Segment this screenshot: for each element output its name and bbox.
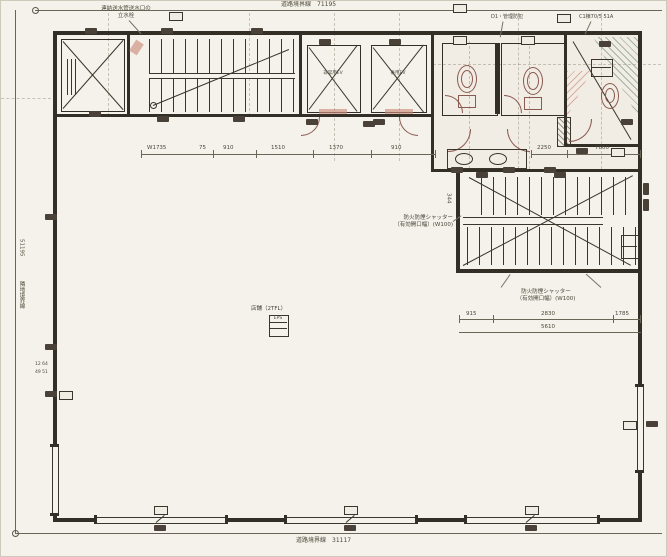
elevator-label: 乗用EV (373, 71, 423, 78)
dim-label: 49 51 (35, 370, 48, 377)
dim-label: 910 (223, 145, 234, 152)
opening-tag (451, 167, 463, 173)
opening-tag (525, 506, 539, 515)
opening-tag (646, 421, 658, 427)
louver-line (75, 59, 76, 95)
dim-label: 7800 (595, 145, 609, 152)
window-jamb (415, 515, 418, 524)
window-jamb (635, 384, 644, 387)
elevator-door (319, 109, 347, 114)
leader-line (501, 274, 511, 288)
boundary-line-bottom (15, 533, 662, 534)
window-jamb (635, 470, 644, 473)
opening-tag (306, 119, 318, 125)
top-right-note: C1棟70/5 51A (579, 14, 613, 21)
dim-label: 12 64 (35, 362, 48, 369)
stair-dim-vertical: 344 (445, 193, 452, 204)
stair-treads (149, 78, 295, 112)
opening-tag (599, 41, 611, 47)
dim-tick (640, 150, 641, 158)
boundary-left-number: 51195 (18, 239, 25, 257)
dim-tick (531, 150, 532, 158)
interior-wall (127, 31, 130, 117)
dim-line (459, 332, 641, 333)
opening-tag (557, 14, 571, 23)
stair-wall (456, 172, 460, 273)
door-swing-arc (399, 117, 418, 136)
boundary-label-bottom: 道路境界線 31117 (296, 538, 351, 545)
stair-landing-rail (463, 217, 603, 225)
dim-tick (313, 150, 314, 158)
opening-tag (525, 525, 537, 531)
hydrant-note-line2: 立水栓 (71, 13, 181, 20)
opening-tag (576, 148, 588, 154)
floor-plan-sheet: 道路境界線 71195 道路境界線 31117 51195 隣地境界線 (0, 0, 667, 557)
window (637, 386, 644, 471)
dim-tick (567, 150, 568, 158)
dim-tick (371, 150, 372, 158)
boundary-corner-marker (32, 7, 39, 14)
boundary-left-label: 隣地境界線 (18, 281, 25, 309)
window-jamb (94, 515, 97, 524)
boundary-label-top: 道路境界線 71195 (281, 2, 336, 9)
dim-tick (256, 150, 257, 158)
elevator-door (385, 109, 413, 114)
toilet-bowl (461, 70, 473, 88)
opening-tag (251, 28, 263, 34)
shutter-note2-line1: 防火防煙シャッター (471, 289, 621, 296)
window-jamb (50, 513, 59, 516)
leader-line (586, 274, 602, 288)
louver-line (71, 59, 72, 95)
opening-tag (643, 183, 649, 195)
interior-wall (431, 31, 434, 172)
equipment-box-divider (591, 67, 611, 68)
dim-label: 1510 (271, 145, 285, 152)
opening-tag (344, 525, 356, 531)
shutter-note1-line2: （有効開口幅）(W100) (331, 222, 453, 229)
hydrant-note-line1: 連結送水管送水口の (71, 6, 181, 13)
window (52, 446, 59, 514)
opening-tag (621, 119, 633, 125)
boundary-line-left (15, 10, 16, 534)
scan-mark (129, 40, 144, 56)
opening-tag (154, 525, 166, 531)
opening-tag (59, 391, 73, 400)
dim-label: 910 (391, 145, 402, 152)
dim-label: 915 (466, 311, 477, 318)
eps-label: EPS (269, 316, 287, 323)
urinal-bowl (605, 88, 615, 103)
window-jamb (225, 515, 228, 524)
opening-tag (554, 172, 566, 178)
dim-tick (640, 315, 641, 323)
shutter-note1-line1: 防火防煙シャッター (331, 215, 453, 222)
opening-tag (169, 12, 183, 21)
dim-tick (141, 150, 142, 158)
eps-box-divider (269, 328, 287, 329)
dim-tick (613, 315, 614, 323)
boundary-corner-marker (12, 530, 19, 537)
opening-tag (45, 214, 57, 220)
shutter-note2-line2: （有効開口幅）(W100) (471, 296, 621, 303)
dim-label: 1785 (615, 311, 629, 318)
window-jamb (464, 515, 467, 524)
stair-arrow-start (150, 102, 157, 109)
dim-label: W1735 (147, 145, 166, 152)
stair-treads (467, 227, 637, 265)
dim-tick (435, 150, 436, 158)
opening-tag (154, 506, 168, 515)
opening-tag (643, 199, 649, 211)
opening-tag (157, 116, 169, 122)
equipment-box (591, 59, 613, 77)
window-jamb (50, 444, 59, 447)
toilet-bowl (527, 72, 539, 90)
opening-tag (453, 4, 467, 13)
room-label-center: 店舗（2TFL） (251, 306, 341, 313)
opening-tag (45, 344, 57, 350)
opening-tag (89, 111, 101, 117)
elevator-label: 非常用EV (309, 71, 357, 78)
opening-tag (233, 116, 245, 122)
dim-label: 5610 (541, 324, 555, 331)
dim-label: 2830 (541, 311, 555, 318)
stair-wall (456, 269, 642, 273)
opening-tag (623, 421, 637, 430)
opening-tag (503, 167, 515, 173)
opening-tag (85, 28, 97, 34)
louver-line (67, 59, 68, 95)
opening-tag (161, 28, 173, 34)
opening-tag (521, 36, 535, 45)
sink-basin (455, 153, 473, 165)
dim-tick (493, 315, 494, 323)
opening-tag (45, 391, 57, 397)
opening-tag (319, 39, 331, 45)
security-note: D1・管理防犯 (491, 14, 523, 21)
dim-label: 2250 (537, 145, 551, 152)
equipment-box (621, 235, 639, 259)
interior-wall (299, 31, 302, 117)
dim-tick (459, 315, 460, 323)
interior-wall (434, 169, 642, 172)
equipment-box-divider (621, 246, 637, 247)
dim-line (141, 154, 436, 155)
opening-tag (344, 506, 358, 515)
opening-tag (611, 148, 625, 157)
window-jamb (284, 515, 287, 524)
opening-tag (363, 121, 375, 127)
grid-line (1, 98, 51, 99)
window-jamb (597, 515, 600, 524)
dim-label: 1370 (329, 145, 343, 152)
dim-tick (213, 150, 214, 158)
sink-basin (489, 153, 507, 165)
opening-tag (476, 172, 488, 178)
opening-tag (389, 39, 401, 45)
toilet-tank (524, 97, 542, 110)
dim-label: 75 (199, 145, 206, 152)
opening-tag (453, 36, 467, 45)
